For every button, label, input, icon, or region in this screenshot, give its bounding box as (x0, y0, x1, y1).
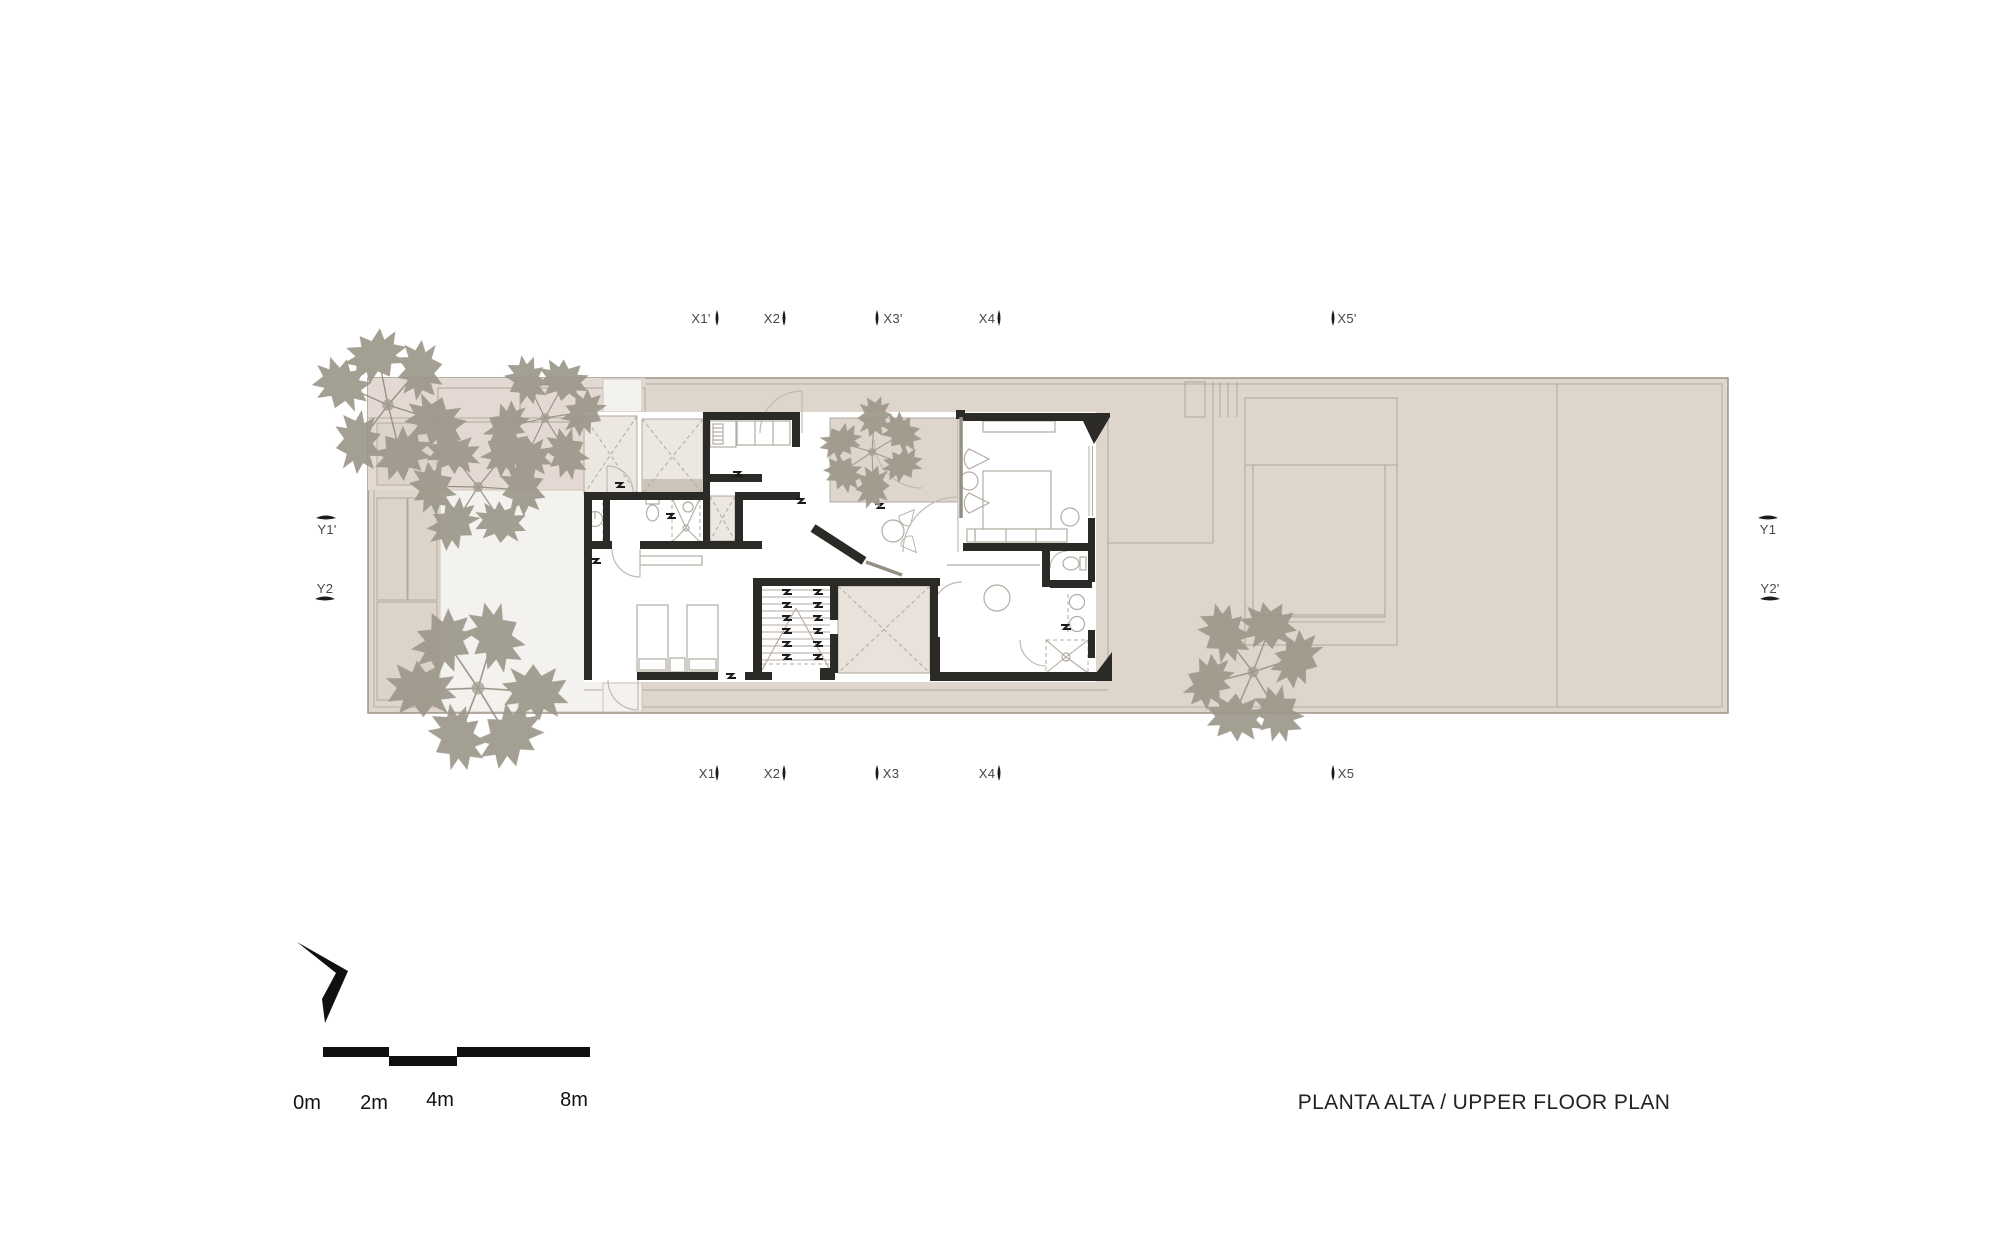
scale-label-2m: 2m (360, 1092, 388, 1115)
axis-label-bottom-x1: X1 (699, 766, 716, 781)
axis-tick-icon (876, 765, 879, 781)
axis-label-top-x1: X1' (691, 311, 710, 326)
axis-tick-icon (998, 765, 1001, 781)
axis-label-bottom-x4: X4 (979, 766, 996, 781)
axis-label-right-y2: Y2' (1760, 581, 1779, 596)
axis-label-top-x3: X3' (883, 311, 902, 326)
axis-tick-icon (1332, 765, 1335, 781)
scale-label-0m: 0m (293, 1092, 321, 1115)
scale-bar (323, 1047, 590, 1066)
axis-tick-icon (1760, 597, 1780, 601)
scale-label-4m: 4m (426, 1089, 454, 1112)
axis-label-top-x2: X2 (764, 311, 781, 326)
terrace-deck-squares (584, 416, 703, 494)
axis-label-top-x5: X5' (1337, 311, 1356, 326)
axis-tick-icon (316, 516, 336, 520)
floor-plan-drawing (0, 0, 2000, 1250)
axis-tick-icon (783, 765, 786, 781)
axis-label-left-y2: Y2 (317, 581, 334, 596)
axis-label-bottom-x3: X3 (883, 766, 900, 781)
north-arrow-icon (297, 942, 348, 1023)
bed-icon (983, 471, 1051, 529)
axis-label-right-y1: Y1 (1760, 522, 1777, 537)
scale-label-8m: 8m (560, 1089, 588, 1112)
double-height-void (838, 586, 930, 673)
axis-tick-icon (1758, 516, 1778, 520)
axis-tick-icon (876, 310, 879, 326)
plan-title: PLANTA ALTA / UPPER FLOOR PLAN (1298, 1091, 1671, 1115)
axis-tick-icon (783, 310, 786, 326)
axis-label-bottom-x5: X5 (1338, 766, 1355, 781)
axis-label-left-y1: Y1' (317, 522, 336, 537)
floor-plan-canvas: X1' X2 X3' X4 X5' X1 X2 X3 X4 X5 Y1' Y2 … (0, 0, 2000, 1250)
axis-tick-icon (998, 310, 1001, 326)
axis-tick-icon (315, 597, 335, 601)
axis-label-bottom-x2: X2 (764, 766, 781, 781)
axis-tick-icon (716, 765, 719, 781)
axis-tick-icon (716, 310, 719, 326)
axis-tick-icon (1332, 310, 1335, 326)
axis-label-top-x4: X4 (979, 311, 996, 326)
